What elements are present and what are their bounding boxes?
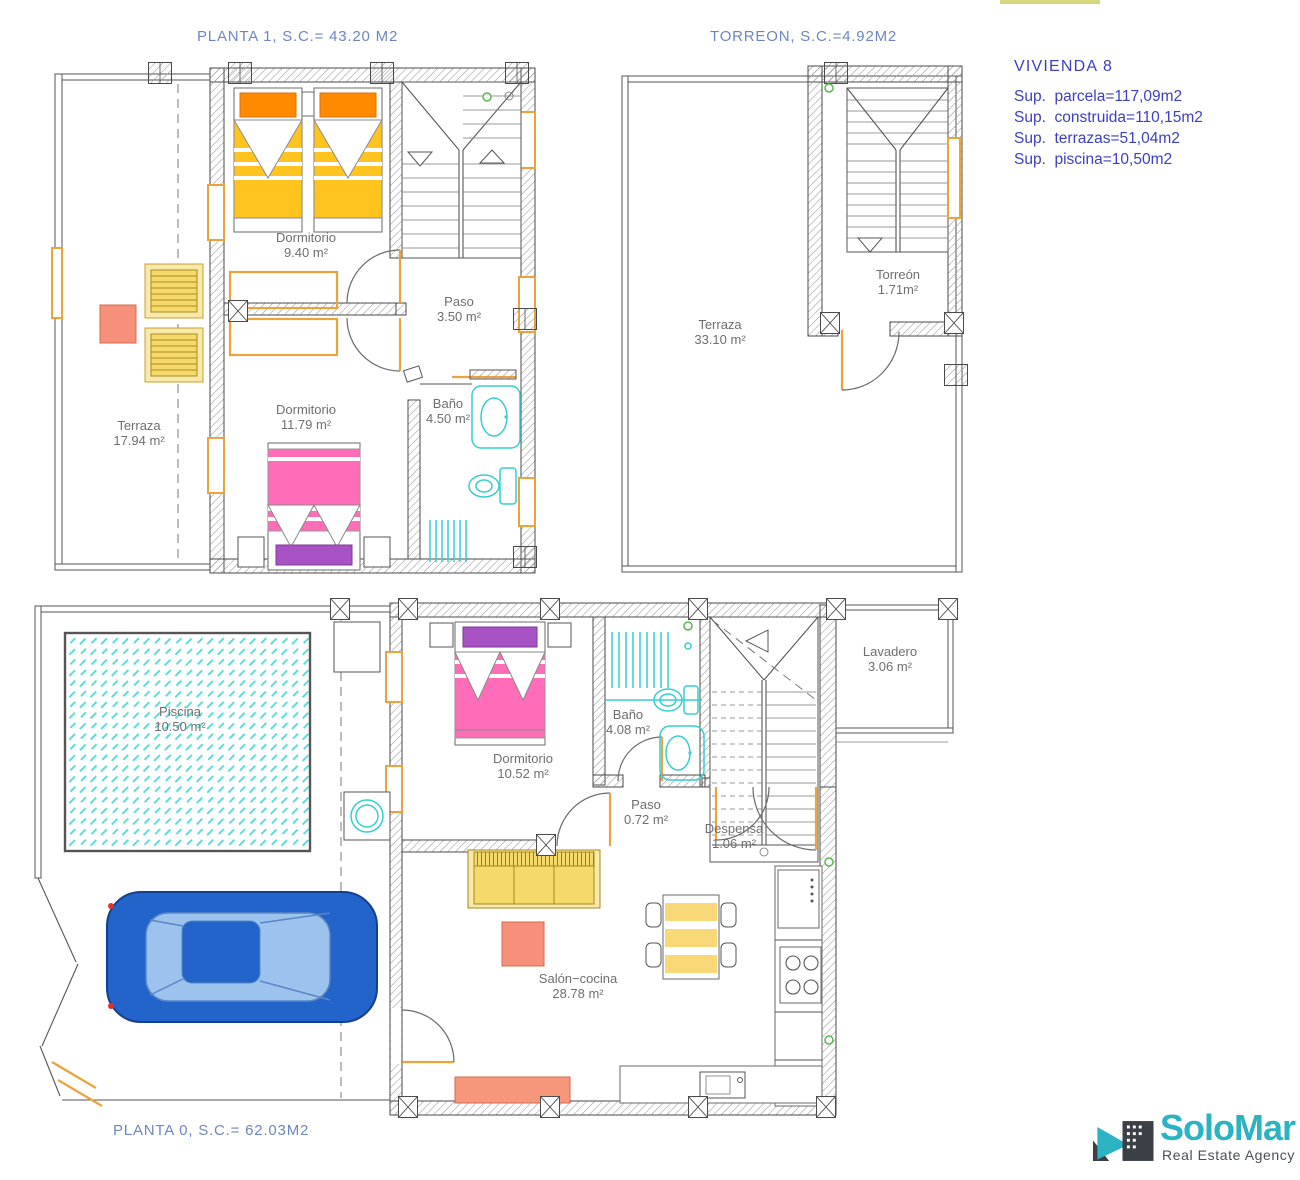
room-label-p0-salon-cocina: Salón−cocina28.78 m² (539, 972, 617, 1001)
info-piscina: Sup. piscina=10,50m2 (1014, 149, 1203, 170)
room-label-p1-dormitorio-1: Dormitorio9.40 m² (276, 231, 336, 260)
room-label-torreon-torreon: Torreón1.71m² (876, 268, 920, 297)
sofa (468, 850, 600, 908)
info-construida: Sup. construida=110,15m2 (1014, 107, 1203, 128)
vivienda-title: VIVIENDA 8 (1014, 58, 1203, 76)
top-right-bar (1000, 0, 1100, 4)
solomar-logo-icon (1090, 1110, 1155, 1172)
terrace-table (100, 305, 136, 343)
wardrobe-bottom (230, 319, 337, 355)
room-label-p0-piscina: Piscina10.50 m² (154, 705, 205, 734)
pool (65, 633, 310, 851)
room-label-p0-paso: Paso0.72 m² (624, 798, 668, 827)
planta0-title: PLANTA 0, S.C.= 62.03M2 (113, 1122, 309, 1139)
room-label-p0-dormitorio: Dormitorio10.52 m² (493, 752, 553, 781)
room-label-p1-dormitorio-2: Dormitorio11.79 m² (276, 403, 336, 432)
washing-machine (344, 792, 390, 840)
torreon-drawing (622, 62, 968, 572)
room-label-p1-paso: Paso3.50 m² (437, 295, 481, 324)
planta0-drawing (35, 598, 958, 1118)
car (107, 892, 377, 1022)
floor-plan-canvas: PLANTA 1, S.C.= 43.20 M2 TORREON, S.C.=4… (0, 0, 1300, 1180)
bathroom-fixtures-p0 (605, 632, 704, 780)
info-parcela: Sup. parcela=117,09m2 (1014, 86, 1203, 107)
double-bed-pink (268, 443, 360, 570)
rug (502, 922, 544, 966)
double-bed-pink-p0 (455, 622, 545, 745)
twin-bed-2 (314, 88, 382, 232)
solomar-tagline: Real Estate Agency (1162, 1147, 1295, 1163)
lounger-1 (145, 264, 203, 318)
info-terrazas: Sup. terrazas=51,04m2 (1014, 128, 1203, 149)
side-table (364, 537, 390, 567)
solomar-logo-text: SoloMar (1160, 1110, 1295, 1146)
room-label-p1-bano: Baño4.50 m² (426, 397, 470, 426)
torreon-title: TORREON, S.C.=4.92M2 (710, 28, 897, 45)
solomar-logo[interactable]: SoloMar Real Estate Agency (1090, 1110, 1295, 1172)
floor-plan-drawing (0, 0, 1300, 1180)
room-label-p0-despensa: Despensa1.06 m² (705, 822, 764, 851)
room-label-p1-terraza: Terraza17.94 m² (113, 419, 164, 448)
info-panel: VIVIENDA 8 Sup. parcela=117,09m2 Sup. co… (1014, 58, 1203, 170)
lounger-2 (145, 328, 203, 382)
room-label-p0-bano: Baño4.08 m² (606, 708, 650, 737)
nightstand (302, 92, 314, 116)
room-label-torreon-terraza: Terraza33.10 m² (694, 318, 745, 347)
twin-bed-1 (234, 88, 302, 232)
side-table (238, 537, 264, 567)
room-label-p0-lavadero: Lavadero3.06 m² (863, 645, 917, 674)
planta1-title: PLANTA 1, S.C.= 43.20 M2 (197, 28, 398, 45)
dining-table (646, 895, 736, 979)
kitchen-counter (620, 866, 822, 1106)
